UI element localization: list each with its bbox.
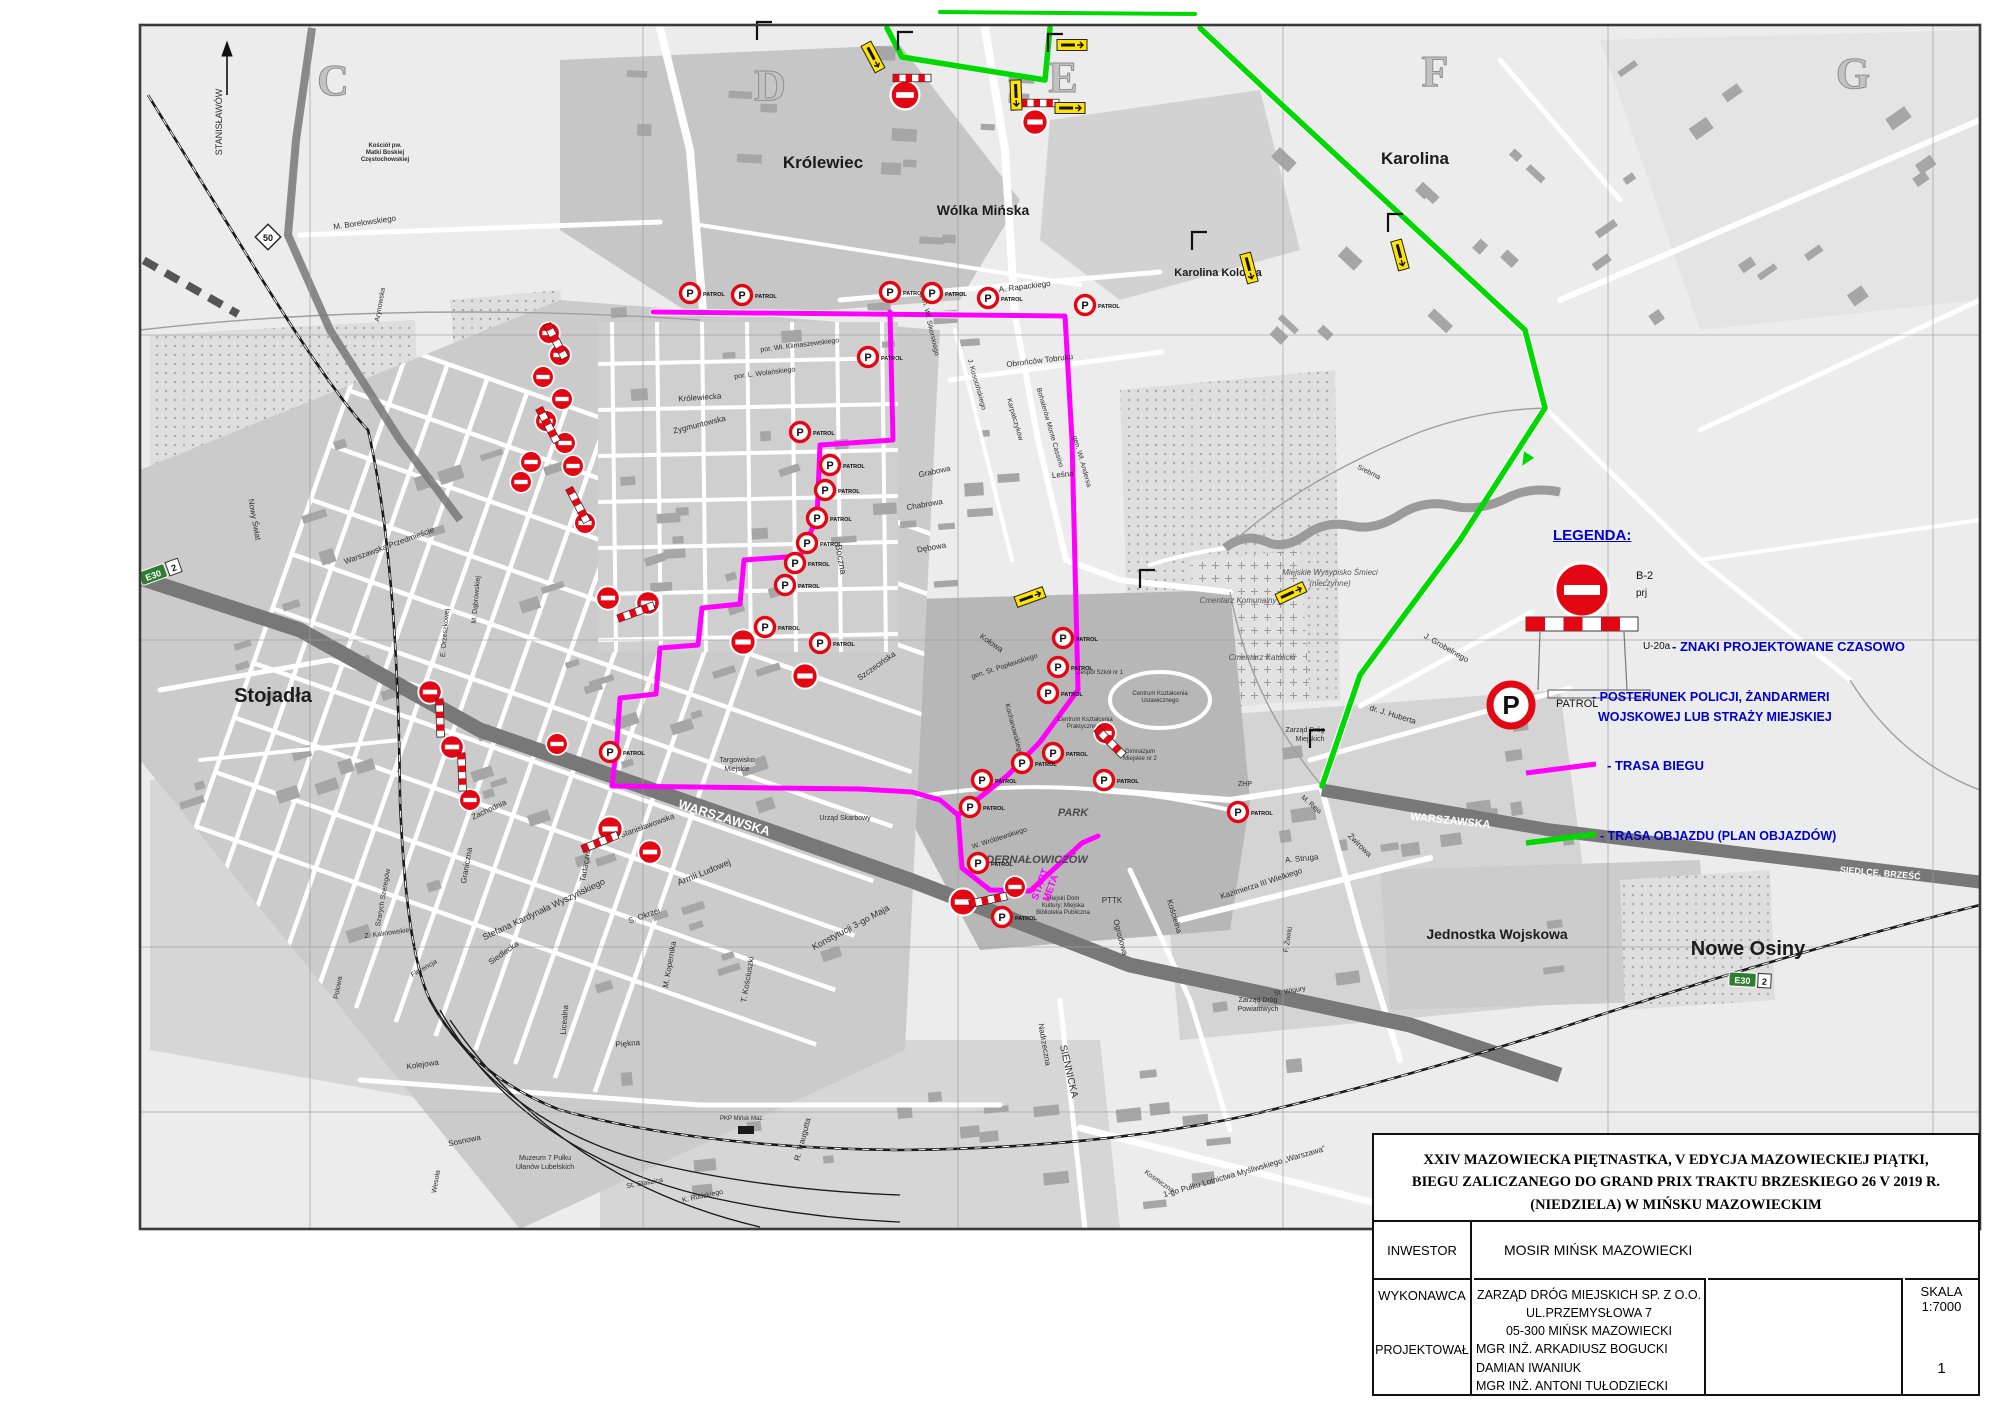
building	[693, 1158, 716, 1172]
map-label: Powiatowych	[1238, 1006, 1279, 1013]
patrol-post-icon	[859, 348, 878, 367]
map-label: Matki Boskiej	[366, 150, 405, 156]
no-entry-sign-icon	[546, 733, 568, 755]
patrol-post-icon	[1013, 754, 1032, 773]
building	[672, 536, 684, 544]
patrol-post-icon	[791, 423, 810, 442]
patrol-word: PATROL	[1251, 811, 1273, 817]
patrol-word: PATROL	[1117, 779, 1139, 785]
no-entry-sign-icon	[891, 81, 920, 110]
map-label: Zarząd Dróg	[1239, 997, 1278, 1004]
no-entry-sign-icon	[1004, 876, 1026, 898]
building	[1212, 1001, 1228, 1012]
legend-detour-route-sample	[1522, 828, 1602, 848]
building	[960, 1125, 981, 1139]
building	[891, 128, 917, 142]
inwestor-value: MOSIR MIŃSK MAZOWIECKI	[1474, 1222, 1978, 1278]
no-entry-sign-icon	[510, 471, 532, 493]
wykonawca-line: 05-300 MIŃSK MAZOWIECKI	[1474, 1322, 1704, 1340]
wykonawca-line: UL.PRZEMYSŁOWA 7	[1474, 1304, 1704, 1322]
building	[781, 330, 802, 343]
scale-cell: SKALA 1:7000 1	[1905, 1278, 1978, 1394]
building	[1400, 842, 1420, 857]
legend-u20a-label: U-20a	[1643, 641, 1670, 652]
detour-sign-icon	[1010, 80, 1022, 110]
patrol-word: PATROL	[945, 292, 967, 298]
patrol-word: PATROL	[778, 626, 800, 632]
skala-value: 1:7000	[1905, 1299, 1978, 1314]
patrol-post-icon	[969, 854, 988, 873]
building	[997, 473, 1019, 483]
building	[621, 1072, 634, 1086]
wykonawca-line: ZARZĄD DRÓG MIEJSKICH SP. Z O.O.	[1474, 1286, 1704, 1304]
building	[728, 91, 752, 100]
building	[611, 307, 627, 318]
legend-item-patrol-2: WOJSKOWEJ LUB STRAŻY MIEJSKIEJ	[1598, 710, 1832, 724]
patrol-post-icon	[979, 289, 998, 308]
patrol-word: PATROL	[1035, 762, 1057, 768]
patrol-post-icon	[1076, 296, 1095, 315]
map-label: PARK	[1058, 807, 1089, 819]
grid-letter-G: G	[1836, 49, 1870, 98]
building	[637, 124, 652, 137]
no-entry-sign-icon	[638, 840, 661, 863]
patrol-word: PATROL	[703, 292, 725, 298]
patrol-post-icon	[681, 284, 700, 303]
patrol-word: PATROL	[991, 862, 1013, 868]
patrol-post-icon	[881, 283, 900, 302]
patrol-post-icon	[1044, 744, 1063, 763]
patrol-word: PATROL	[1066, 752, 1088, 758]
wykonawca-label: WYKONAWCA	[1374, 1288, 1470, 1303]
title-block-empty-cell	[1708, 1278, 1903, 1394]
road-barrier-icon	[893, 74, 931, 82]
legend-b2-label: B-2	[1636, 570, 1653, 582]
legend-item-patrol-1: - POSTERUNEK POLICJI, ŻANDARMERI	[1592, 690, 1830, 704]
patrol-post-icon	[811, 634, 830, 653]
plan-title: XXIV MAZOWIECKA PIĘTNASTKA, V EDYCJA MAZ…	[1374, 1135, 1978, 1222]
patrol-word: PATROL	[1076, 637, 1098, 643]
building	[650, 582, 673, 592]
no-entry-sign-icon	[792, 663, 817, 688]
building	[897, 1106, 913, 1119]
plan-title-line3: (NIEDZIELA) W MIŃSKU MAZOWIECKIM	[1382, 1194, 1970, 1216]
building	[1116, 1107, 1142, 1122]
building	[1286, 1058, 1303, 1073]
town-label: Jednostka Wojskowa	[1426, 926, 1568, 942]
no-entry-sign-icon	[459, 789, 481, 811]
patrol-post-icon	[756, 618, 775, 637]
patrol-post-icon	[816, 481, 835, 500]
patrol-post-icon	[993, 908, 1012, 927]
traffic-plan-page: P	[0, 0, 2000, 1414]
patrol-post-icon	[821, 456, 840, 475]
building	[723, 352, 736, 359]
building	[1149, 1102, 1170, 1116]
patrol-post-icon	[808, 509, 827, 528]
sheet-number: 1	[1905, 1360, 1978, 1377]
executor-designer-labels: WYKONAWCA PROJEKTOWAŁ	[1374, 1278, 1472, 1394]
projektowal-label: PROJEKTOWAŁ	[1374, 1343, 1470, 1357]
skala-label: SKALA	[1905, 1284, 1978, 1299]
legend-item-signs: - ZNAKI PROJEKTOWANE CZASOWO	[1672, 639, 1905, 654]
svg-text:2: 2	[1762, 977, 1768, 987]
legend-title: LEGENDA:	[1553, 527, 1631, 544]
no-entry-sign-icon	[562, 455, 584, 477]
svg-text:P: P	[1502, 690, 1519, 720]
building	[873, 502, 897, 515]
map-label: Biblioteka Publiczna	[1036, 910, 1090, 916]
building	[881, 162, 902, 175]
map-label: Gimnazjum	[1125, 749, 1155, 755]
grid-letter-F: F	[1422, 47, 1449, 96]
road-barrier-icon	[458, 753, 467, 791]
detour-sign-icon	[1055, 103, 1085, 114]
projektowal-line: MGR INŻ. ARKADIUSZ BOGUCKI	[1474, 1340, 1704, 1358]
building	[664, 548, 686, 559]
map-label: Ustawicznego	[1141, 698, 1179, 704]
patrol-word: PATROL	[1098, 304, 1120, 310]
map-label: Kościół pw.	[368, 143, 401, 149]
patrol-post-icon	[733, 286, 752, 305]
town-label: Karolina	[1381, 149, 1450, 168]
patrol-word: PATROL	[820, 542, 842, 548]
building	[1510, 801, 1523, 816]
patrol-word: PATROL	[838, 489, 860, 495]
no-entry-sign-icon	[1022, 109, 1047, 134]
building	[760, 431, 771, 441]
road-barrier-icon	[1021, 99, 1059, 107]
map-label: Urząd Skarbowy	[819, 815, 871, 822]
building	[942, 234, 956, 243]
map-label: Częstochowskiej	[361, 157, 410, 163]
detour-sign-icon	[1057, 40, 1087, 51]
building	[620, 476, 635, 486]
patrol-post-icon	[961, 798, 980, 817]
map-label: Centrum Kształcenia	[1132, 691, 1188, 697]
patrol-post-icon	[923, 284, 942, 303]
patrol-post-icon	[1039, 684, 1058, 703]
detour-route-outside	[940, 12, 1195, 14]
map-label: PTTK	[1102, 896, 1123, 905]
map-label: Miejskie nr 2	[1123, 756, 1157, 762]
map-label: Cmentarz Katolicki	[1229, 653, 1296, 662]
map-label: ZHP	[1238, 781, 1252, 788]
town-label: Wólka Mińska	[937, 202, 1030, 218]
no-entry-sign-icon	[532, 366, 554, 388]
projektowal-line: DAMIAN IWANIUK	[1474, 1359, 1704, 1377]
building	[631, 388, 648, 401]
inwestor-label: INWESTOR	[1374, 1222, 1472, 1278]
patrol-post-icon	[798, 534, 817, 553]
map-label: Miejskie	[724, 766, 749, 773]
map-label: Targowisko	[719, 757, 754, 764]
no-entry-sign-icon	[551, 388, 573, 410]
building	[1279, 829, 1292, 843]
map-label: (nieczynne)	[1309, 579, 1351, 588]
building	[938, 523, 955, 530]
grid-letter-E: E	[1048, 53, 1077, 102]
patrol-word: PATROL	[843, 464, 865, 470]
patrol-post-icon	[776, 576, 795, 595]
map-label: Muzeum 7 Pułku	[519, 1155, 571, 1162]
patrol-word: PATROL	[1071, 666, 1093, 672]
map-label: Ułanów Lubelskich	[516, 1164, 574, 1171]
patrol-post-icon	[973, 771, 992, 790]
no-entry-sign-icon	[730, 629, 755, 654]
map-label: Miejskie Wysypisko Śmieci	[1282, 568, 1378, 577]
map-label: PKP Mińsk Maz.	[720, 1116, 764, 1122]
plan-title-line2: BIEGU ZALICZANEGO DO GRAND PRIX TRAKTU B…	[1382, 1171, 1970, 1193]
patrol-post-icon	[1095, 771, 1114, 790]
map-label: Cmentarz Komunalny	[1200, 596, 1278, 605]
patrol-post-icon	[1229, 803, 1248, 822]
projektowal-line: MGR INŻ. ANTONI TUŁODZIECKI	[1474, 1377, 1704, 1395]
patrol-post-icon	[1049, 658, 1068, 677]
building	[737, 154, 762, 164]
town-label: Królewiec	[783, 153, 863, 172]
patrol-post-icon	[601, 743, 620, 762]
svg-text:50: 50	[263, 233, 273, 243]
patrol-post-icon	[1054, 629, 1073, 648]
legend-b2-sub: prj	[1636, 588, 1647, 599]
legend-item-detour: - TRASA OBJAZDU (PLAN OBJAZDÓW)	[1600, 829, 1836, 843]
building	[903, 159, 917, 167]
building	[979, 1130, 999, 1143]
map-label: Kultury; Miejska	[1042, 903, 1085, 909]
patrol-word: PATROL	[995, 779, 1017, 785]
building	[676, 507, 689, 516]
building	[900, 520, 917, 528]
no-entry-sign-icon	[596, 586, 619, 609]
building	[823, 1155, 834, 1164]
building	[964, 482, 984, 496]
no-entry-sign-icon	[520, 451, 542, 473]
patrol-post-icon	[786, 554, 805, 573]
town-label: Stojadła	[234, 685, 313, 707]
building	[919, 236, 945, 244]
patrol-word: PATROL	[808, 562, 830, 568]
patrol-word: PATROL	[881, 356, 903, 362]
legend-item-route: - TRASA BIEGU	[1607, 758, 1704, 773]
patrol-word: PATROL	[798, 584, 820, 590]
road-barrier-icon	[436, 699, 445, 737]
building	[627, 70, 647, 78]
patrol-word: PATROL	[983, 806, 1005, 812]
svg-text:E30: E30	[1734, 975, 1751, 986]
map-label: STANISŁAWÓW	[214, 88, 224, 155]
grid-letter-D: D	[754, 61, 786, 110]
building	[981, 124, 995, 131]
building	[928, 1091, 942, 1102]
plan-title-line1: XXIV MAZOWIECKA PIĘTNASTKA, V EDYCJA MAZ…	[1382, 1149, 1970, 1171]
title-block: XXIV MAZOWIECKA PIĘTNASTKA, V EDYCJA MAZ…	[1372, 1133, 1980, 1396]
legend-run-route-sample	[1522, 758, 1602, 778]
town-label: Nowe Osiny	[1691, 938, 1806, 960]
patrol-word: PATROL	[1061, 692, 1083, 698]
patrol-word: PATROL	[833, 642, 855, 648]
grid-letter-C: C	[317, 56, 349, 105]
patrol-word: PATROL	[1015, 916, 1037, 922]
patrol-word: PATROL	[755, 294, 777, 300]
routes-outside-frame	[940, 12, 1195, 14]
building	[751, 528, 768, 540]
patrol-word: PATROL	[1001, 297, 1023, 303]
patrol-word: PATROL	[623, 751, 645, 757]
road-badge-e30: E302	[1729, 972, 1772, 988]
patrol-word: PATROL	[813, 431, 835, 437]
patrol-word: PATROL	[830, 517, 852, 523]
executor-designer-values: ZARZĄD DRÓG MIEJSKICH SP. Z O.O. UL.PRZE…	[1474, 1278, 1706, 1394]
